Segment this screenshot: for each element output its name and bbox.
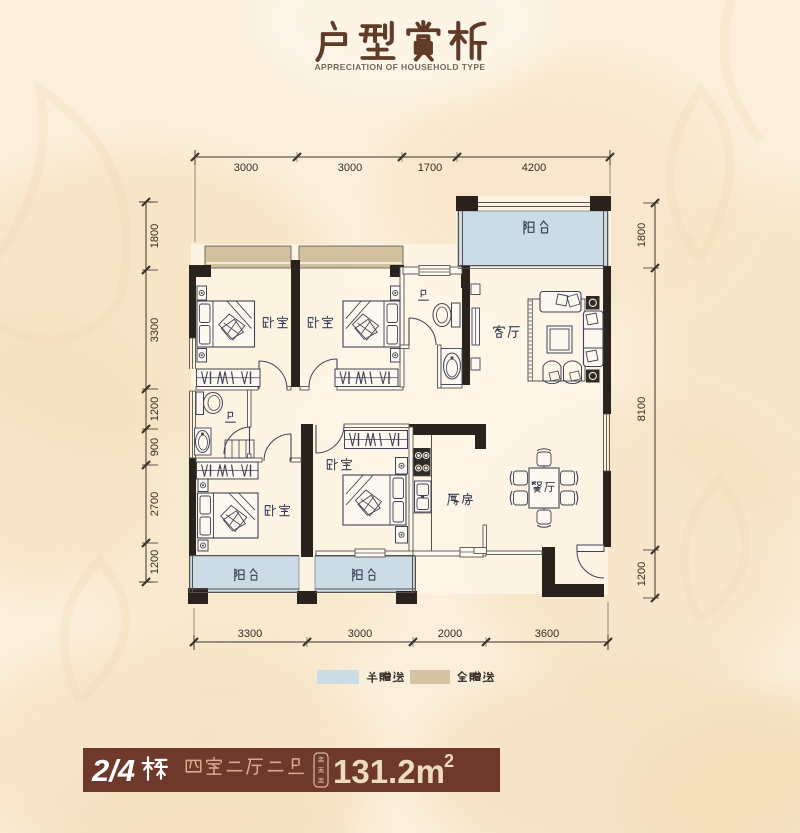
- svg-text:2: 2: [444, 751, 454, 771]
- svg-text:APPRECIATION OF HOUSEHOLD TYPE: APPRECIATION OF HOUSEHOLD TYPE: [315, 62, 486, 72]
- svg-text:2/4: 2/4: [91, 753, 135, 788]
- svg-text:131.2m: 131.2m: [333, 753, 445, 790]
